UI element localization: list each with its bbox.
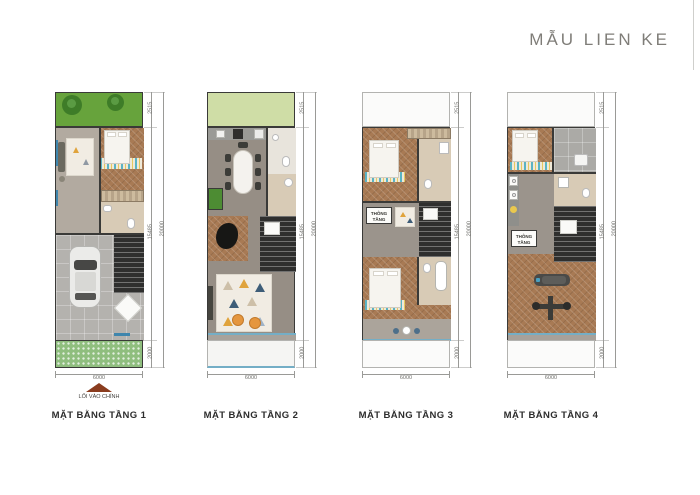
garden	[55, 92, 143, 127]
pillow	[373, 143, 383, 148]
armchair	[232, 314, 244, 326]
floorplan-level-3: THÔNG TẦNG	[362, 92, 450, 368]
rug-pattern	[223, 281, 233, 290]
toilet	[127, 218, 135, 229]
dim-width: 6000	[362, 376, 450, 382]
bathroom	[268, 128, 296, 174]
treadmill-console-icon	[536, 278, 540, 282]
level-1-main	[55, 127, 143, 340]
stair-landing	[423, 208, 438, 220]
bed	[104, 130, 130, 164]
toilet	[582, 188, 590, 198]
wardrobe	[101, 190, 144, 202]
dim-ext	[451, 92, 472, 93]
plan-label: MẶT BẰNG TẦNG 1	[34, 410, 164, 421]
car-roof	[75, 272, 96, 291]
grass-pavers	[55, 340, 143, 368]
dim-value: 15485	[600, 217, 606, 247]
dim-ext	[144, 92, 165, 93]
bathroom-2	[419, 257, 451, 305]
dim-total: 20000	[612, 214, 618, 244]
wall	[552, 128, 554, 172]
bed-rug	[510, 162, 552, 170]
weight-plate-icon	[563, 302, 571, 310]
rug-pattern	[229, 299, 239, 308]
lower-roof-lawn	[207, 92, 295, 127]
poster-page: MẪU LIEN KE	[0, 0, 700, 495]
shower-room	[268, 174, 296, 216]
sink	[272, 134, 279, 141]
level-3-main: THÔNG TẦNG	[362, 127, 450, 340]
rug-pattern	[73, 147, 79, 153]
wall	[417, 257, 419, 305]
cafe-table	[402, 326, 411, 335]
dim-ext	[596, 367, 617, 368]
washer-door-icon	[512, 179, 516, 183]
washing-machine	[509, 190, 518, 200]
window	[56, 190, 58, 206]
sink	[216, 130, 225, 138]
rug-pattern	[400, 212, 406, 217]
pillow	[386, 143, 396, 148]
dim-width: 6000	[507, 376, 595, 382]
stairs	[114, 235, 144, 293]
stair-landing	[560, 220, 577, 234]
barbell-bar	[536, 304, 566, 309]
chair	[238, 142, 248, 148]
pillow	[373, 271, 384, 276]
chair	[225, 154, 231, 162]
pillow	[107, 132, 116, 137]
bed	[369, 140, 399, 178]
rug-pattern	[83, 159, 89, 165]
pillow	[515, 133, 524, 138]
armchair	[249, 317, 261, 329]
pillow	[387, 271, 398, 276]
rug-pattern	[247, 297, 257, 306]
bathroom	[99, 202, 144, 236]
dim-value: 2515	[600, 93, 606, 123]
floorplan-level-2: 2515 15485 2000 20000 6000 MẶT BẰNG TẦNG…	[207, 92, 295, 368]
toilet	[424, 179, 432, 189]
page-title: MẪU LIEN KE	[529, 30, 670, 50]
fridge	[254, 129, 264, 139]
dim-value: 2000	[455, 338, 461, 368]
dim-ext	[296, 92, 317, 93]
plan-label: MẶT BẰNG TẦNG 3	[341, 410, 471, 421]
chair	[225, 182, 231, 190]
bathroom	[554, 174, 596, 206]
tree-icon	[67, 99, 76, 108]
open-below	[362, 340, 450, 368]
rug-pattern	[407, 218, 413, 223]
side-table	[59, 176, 65, 182]
wall	[266, 128, 268, 216]
balcony	[363, 319, 451, 341]
plan-label: MẶT BẰNG TẦNG 2	[186, 410, 316, 421]
gate	[114, 333, 130, 336]
washing-machine	[509, 176, 518, 186]
car	[69, 246, 101, 308]
dining-table	[233, 150, 253, 194]
dim-total: 20000	[160, 214, 166, 244]
wardrobe	[407, 128, 451, 139]
tree-icon	[111, 97, 119, 105]
shower	[439, 142, 449, 154]
chair	[255, 182, 261, 190]
chair	[393, 328, 399, 334]
floorplan-level-4: THÔNG TẦNG 2515 15485 2000 20000 600	[507, 92, 595, 368]
sink	[103, 205, 112, 212]
lounge-rug	[395, 207, 415, 227]
chair	[225, 168, 231, 176]
bathtub	[435, 261, 447, 291]
open-roof	[362, 92, 450, 127]
level-4-main: THÔNG TẦNG	[507, 127, 595, 340]
pillow	[527, 133, 536, 138]
toilet	[282, 156, 290, 167]
void-label: THÔNG TẦNG	[511, 230, 537, 247]
bed	[369, 268, 401, 308]
laundry-sink	[510, 206, 517, 213]
toilet	[423, 263, 431, 273]
open-below	[507, 340, 595, 368]
stove	[233, 129, 243, 139]
bed	[512, 130, 538, 162]
dim-value: 2000	[600, 338, 606, 368]
living-rug	[216, 274, 272, 332]
entrance-label: LỐI VÀO CHÍNH	[49, 395, 149, 401]
dim-width: 6000	[55, 376, 143, 382]
open-roof	[507, 92, 595, 127]
lounge-chair	[574, 154, 588, 166]
dim-ext	[144, 367, 165, 368]
washer-door-icon	[512, 193, 516, 197]
dim-value: 2000	[300, 338, 306, 368]
treadmill-belt	[542, 276, 566, 284]
dim-value: 2000	[148, 338, 154, 368]
dim-total: 20000	[312, 214, 318, 244]
bathroom-1	[419, 139, 451, 201]
tv-console	[208, 286, 213, 320]
void-label: THÔNG TẦNG	[366, 207, 392, 224]
chair	[255, 168, 261, 176]
dim-ext	[596, 92, 617, 93]
rug-pattern	[239, 279, 249, 288]
car-windshield	[74, 260, 97, 270]
stairs	[554, 206, 596, 262]
dim-value: 2515	[300, 93, 306, 123]
dim-value: 15485	[148, 217, 154, 247]
planter	[208, 188, 223, 210]
wall	[417, 139, 419, 201]
window	[56, 140, 58, 166]
pillow	[118, 132, 127, 137]
dim-value: 2515	[148, 93, 154, 123]
level-2-main	[207, 127, 295, 340]
sofa	[58, 142, 65, 172]
chair	[414, 328, 420, 334]
dim-value: 2515	[455, 93, 461, 123]
dim-ext	[451, 367, 472, 368]
floorplan-level-1: 2515 15485 2000 20000 6000 LỐI VÀO CHÍNH…	[55, 92, 143, 368]
page-edge-line	[693, 0, 694, 70]
shower	[284, 178, 293, 187]
stair-landing	[264, 222, 280, 235]
dim-width: 6000	[207, 376, 295, 382]
rug-pattern	[255, 283, 265, 292]
dim-ext	[296, 367, 317, 368]
treadmill	[534, 274, 570, 286]
chair	[255, 154, 261, 162]
washbasin	[558, 177, 569, 188]
dim-value: 15485	[300, 217, 306, 247]
plan-label: MẶT BẰNG TẦNG 4	[486, 410, 616, 421]
entrance-arrow-icon	[86, 383, 112, 392]
dim-value: 15485	[455, 217, 461, 247]
terrace	[207, 340, 295, 368]
gym-floor	[508, 254, 596, 333]
wall	[99, 128, 101, 236]
dim-total: 20000	[467, 214, 473, 244]
weight-plate-icon	[532, 302, 540, 310]
living-rug	[66, 138, 94, 176]
car-rear-glass	[75, 293, 96, 300]
